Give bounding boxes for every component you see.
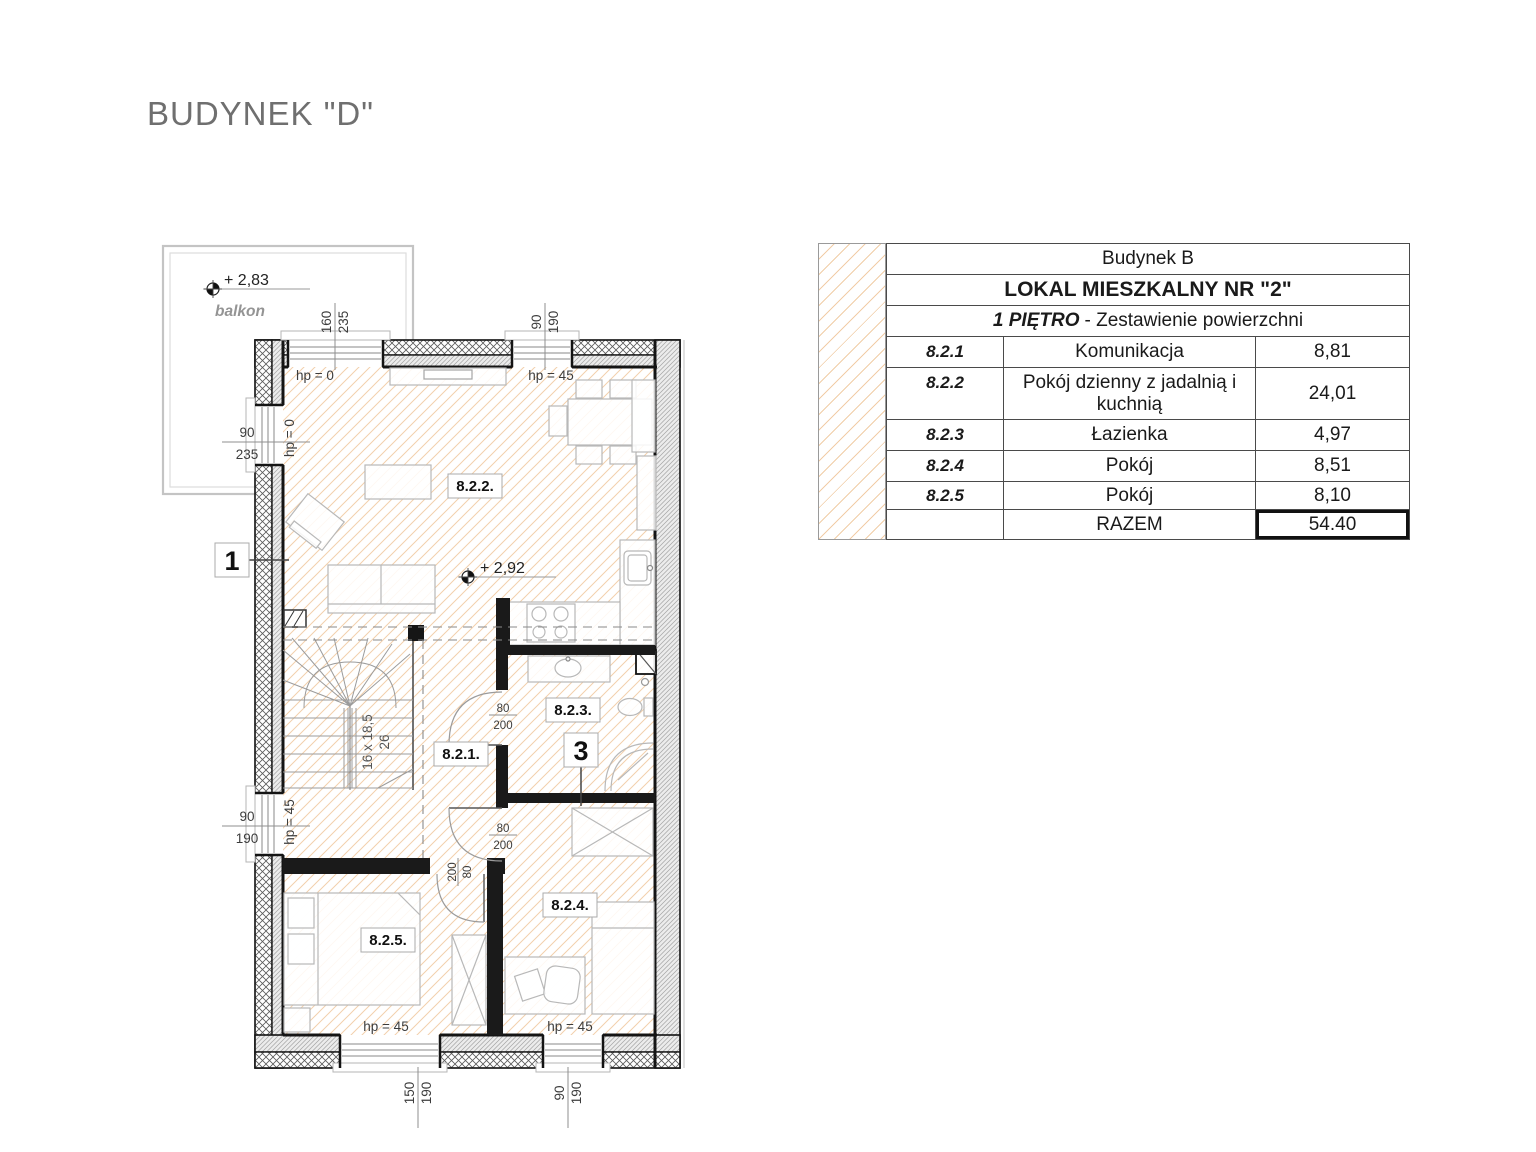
row-id: 8.2.1 xyxy=(887,337,1004,368)
tv-bench xyxy=(390,368,506,385)
svg-text:1: 1 xyxy=(224,546,239,576)
stairs-riser: 26 xyxy=(377,734,392,749)
room-label-822: 8.2.2. xyxy=(448,474,502,498)
dim-bottom-150: 150 190 xyxy=(402,1067,434,1128)
wall-bottom xyxy=(255,1035,680,1068)
row-area: 24,01 xyxy=(1256,368,1409,420)
total-value: 54.40 xyxy=(1256,510,1409,539)
svg-text:90: 90 xyxy=(529,314,544,329)
total-empty-cell xyxy=(887,510,1004,539)
svg-text:8.2.4.: 8.2.4. xyxy=(551,897,589,914)
svg-text:190: 190 xyxy=(569,1082,584,1105)
room-label-825: 8.2.5. xyxy=(361,928,415,952)
bed-824 xyxy=(592,902,654,1014)
svg-text:90: 90 xyxy=(239,425,254,440)
window-left-90 xyxy=(246,786,283,862)
row-area: 4,97 xyxy=(1256,420,1409,451)
living-level: + 2,92 xyxy=(480,560,525,577)
row-id: 8.2.5 xyxy=(887,482,1004,510)
row-name: Komunikacja xyxy=(1004,337,1256,368)
area-table: Budynek B LOKAL MIESZKALNY NR "2" 1 PIĘT… xyxy=(818,243,1410,540)
svg-text:8.2.1.: 8.2.1. xyxy=(442,746,480,763)
level-marker-balcony: + 2,83 balkon xyxy=(203,272,310,320)
radiator xyxy=(284,610,306,627)
wall-right xyxy=(655,340,684,1068)
svg-text:190: 190 xyxy=(546,311,561,334)
hp-label-top-right: hp = 45 xyxy=(528,368,573,383)
hp-label-bottom-2: hp = 45 xyxy=(547,1019,592,1034)
window-bottom-150 xyxy=(333,1035,447,1072)
row-name: Pokój xyxy=(1004,482,1256,510)
stairs-spec: 16 x 18,5 xyxy=(360,714,375,770)
floor-header-rest: - Zestawienie powierzchni xyxy=(1084,310,1303,331)
svg-text:3: 3 xyxy=(573,736,588,766)
row-id: 8.2.4 xyxy=(887,451,1004,482)
wardrobe-824 xyxy=(572,808,653,856)
dim-bottom-90: 90 190 xyxy=(552,1067,584,1128)
sofa xyxy=(328,565,435,613)
row-area: 8,81 xyxy=(1256,337,1409,368)
hp-label-left-lower: hp = 45 xyxy=(282,799,297,844)
room-label-823: 8.2.3. xyxy=(546,698,600,722)
table-hatch-column xyxy=(818,243,886,540)
svg-text:80: 80 xyxy=(462,866,474,879)
row-area: 8,51 xyxy=(1256,451,1409,482)
svg-text:90: 90 xyxy=(239,809,254,824)
table-unit-header: LOKAL MIESZKALNY NR "2" xyxy=(887,275,1409,306)
desk-824 xyxy=(505,957,585,1014)
svg-text:80: 80 xyxy=(497,703,510,715)
balcony-label: balkon xyxy=(215,303,265,320)
wall-left xyxy=(255,340,283,1068)
svg-text:150: 150 xyxy=(402,1082,417,1105)
row-id: 8.2.2 xyxy=(887,368,1004,420)
svg-text:90: 90 xyxy=(552,1085,567,1100)
row-name: Łazienka xyxy=(1004,420,1256,451)
svg-text:8.2.3.: 8.2.3. xyxy=(554,702,592,719)
area-table-grid: Budynek B LOKAL MIESZKALNY NR "2" 1 PIĘT… xyxy=(886,243,1410,540)
hp-label-bottom-1: hp = 45 xyxy=(363,1019,408,1034)
room-label-824: 8.2.4. xyxy=(543,893,597,917)
wardrobe-825 xyxy=(452,935,486,1025)
window-top-90 xyxy=(505,331,579,367)
svg-text:160: 160 xyxy=(319,311,334,334)
table-building-header: Budynek B xyxy=(887,244,1409,275)
window-bottom-90 xyxy=(536,1035,610,1072)
floor-header-bold: 1 PIĘTRO xyxy=(993,310,1080,331)
row-name: Pokój xyxy=(1004,451,1256,482)
row-name: Pokój dzienny z jadalnią i kuchnią xyxy=(1004,368,1256,420)
row-area: 8,10 xyxy=(1256,482,1409,510)
page: BUDYNEK "D" xyxy=(0,0,1536,1152)
svg-text:190: 190 xyxy=(236,831,259,846)
svg-text:200: 200 xyxy=(493,840,512,852)
floor-plan: 16 x 18,5 26 xyxy=(0,0,1536,1152)
svg-text:190: 190 xyxy=(419,1082,434,1105)
desk-livingroom xyxy=(365,465,431,499)
svg-text:200: 200 xyxy=(447,862,459,881)
hp-label-top-left: hp = 0 xyxy=(296,368,334,383)
room-label-821: 8.2.1. xyxy=(434,742,488,766)
svg-text:235: 235 xyxy=(236,447,259,462)
table-floor-header: 1 PIĘTRO - Zestawienie powierzchni xyxy=(887,306,1409,337)
row-id: 8.2.3 xyxy=(887,420,1004,451)
svg-text:235: 235 xyxy=(336,311,351,334)
svg-text:8.2.2.: 8.2.2. xyxy=(456,478,494,495)
svg-text:80: 80 xyxy=(497,823,510,835)
total-label: RAZEM xyxy=(1004,510,1256,539)
hp-label-left-upper: hp = 0 xyxy=(282,419,297,457)
balcony-level: + 2,83 xyxy=(224,272,269,289)
svg-text:200: 200 xyxy=(493,720,512,732)
svg-text:8.2.5.: 8.2.5. xyxy=(369,932,407,949)
